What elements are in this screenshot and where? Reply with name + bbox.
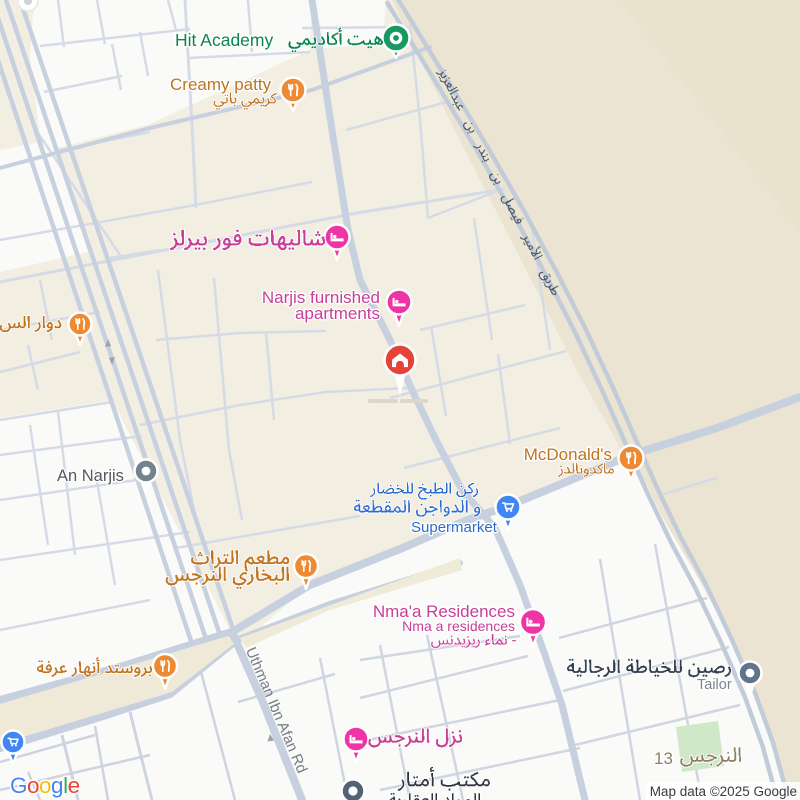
svg-text:apartments: apartments [295, 304, 380, 323]
svg-text:Google: Google [10, 773, 80, 798]
svg-text:Creamy patty: Creamy patty [170, 75, 272, 94]
svg-text:13: 13 [654, 749, 673, 768]
svg-text:Tailor: Tailor [697, 677, 732, 693]
svg-text:Hit Academy: Hit Academy [175, 30, 273, 50]
svg-text:Supermarket: Supermarket [411, 519, 498, 536]
svg-text:Nma a residences: Nma a residences [402, 618, 515, 634]
svg-text:An Narjis: An Narjis [57, 467, 124, 485]
svg-text:McDonald's: McDonald's [524, 445, 612, 464]
svg-text:Map data ©2025 Google: Map data ©2025 Google [650, 784, 797, 799]
